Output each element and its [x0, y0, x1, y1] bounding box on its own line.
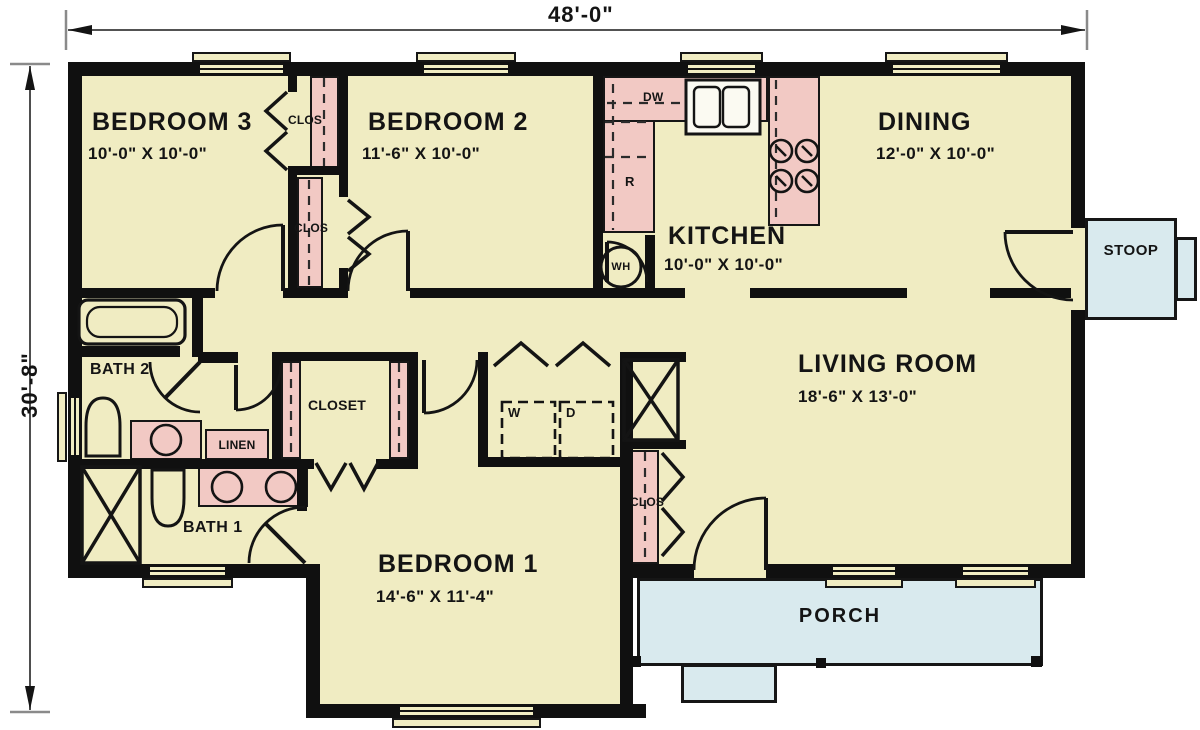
walkin-closet-bifold	[350, 463, 378, 489]
living-dims: 18'-6" X 13'-0"	[798, 388, 917, 405]
bedroom2-closet-bifold	[348, 200, 369, 234]
shower-box	[82, 467, 140, 563]
porch-label: PORCH	[637, 606, 1043, 626]
bathtub	[79, 300, 185, 344]
bedroom1-dims: 14'-6" X 11'-4"	[376, 588, 494, 605]
bedroom3-door	[217, 225, 283, 291]
furnace-box	[624, 360, 678, 440]
dryer-label: D	[566, 406, 576, 419]
bedroom2-door	[348, 231, 408, 291]
bath1-label: BATH 1	[183, 520, 243, 536]
bedroom3-name: BEDROOM 3	[92, 110, 252, 135]
living-closet-bifold	[662, 453, 683, 501]
bedroom1-door	[424, 360, 477, 413]
living-name: LIVING ROOM	[798, 352, 977, 377]
range-burners	[770, 140, 818, 192]
hall-vestibule-door	[236, 365, 281, 410]
bedroom3-closet-bifold	[266, 132, 287, 170]
bath2-label: BATH 2	[90, 362, 150, 378]
bath1-door	[249, 507, 305, 563]
range-label: R	[625, 175, 635, 188]
overall-depth-dimension: 30'-8"	[19, 351, 41, 419]
bedroom2-clos-label: CLOS	[294, 222, 328, 234]
stoop-label: STOOP	[1085, 243, 1177, 258]
overall-width-dimension: 48'-0"	[548, 4, 614, 26]
kitchen-dims: 10'-0" X 10'-0"	[664, 256, 783, 273]
walkin-closet-bifold	[316, 463, 346, 489]
bedroom3-closet-bifold	[266, 92, 287, 130]
water-heater-label: WH	[611, 262, 630, 273]
dining-dims: 12'-0" X 10'-0"	[876, 145, 995, 162]
porch-posts	[630, 656, 1042, 668]
dishwasher-label: DW	[643, 91, 663, 103]
bath2-toilet	[86, 398, 120, 456]
bath1-toilet	[152, 470, 184, 526]
living-closet-bifold	[662, 508, 683, 556]
bedroom2-name: BEDROOM 2	[368, 110, 528, 135]
stoop-door	[1005, 232, 1073, 300]
dining-name: DINING	[878, 110, 972, 135]
bedroom3-dims: 10'-0" X 10'-0"	[88, 145, 207, 162]
bedroom2-closet-bifold	[348, 237, 369, 271]
floor-plan-canvas: LINEN	[0, 0, 1200, 730]
laundry-bifold	[494, 343, 548, 366]
bath2-door	[150, 362, 200, 412]
kitchen-name: KITCHEN	[668, 224, 786, 249]
living-clos-label: CLOS	[630, 496, 664, 508]
washer-label: W	[508, 406, 520, 419]
bedroom2-dims: 11'-6" X 10'-0"	[362, 145, 480, 162]
walkin-closet-label: CLOSET	[308, 398, 366, 412]
kitchen-sink	[686, 80, 760, 134]
laundry-bifold	[556, 343, 610, 366]
bedroom3-clos-label: CLOS	[288, 114, 322, 126]
front-door	[694, 498, 766, 570]
bedroom1-name: BEDROOM 1	[378, 552, 538, 577]
